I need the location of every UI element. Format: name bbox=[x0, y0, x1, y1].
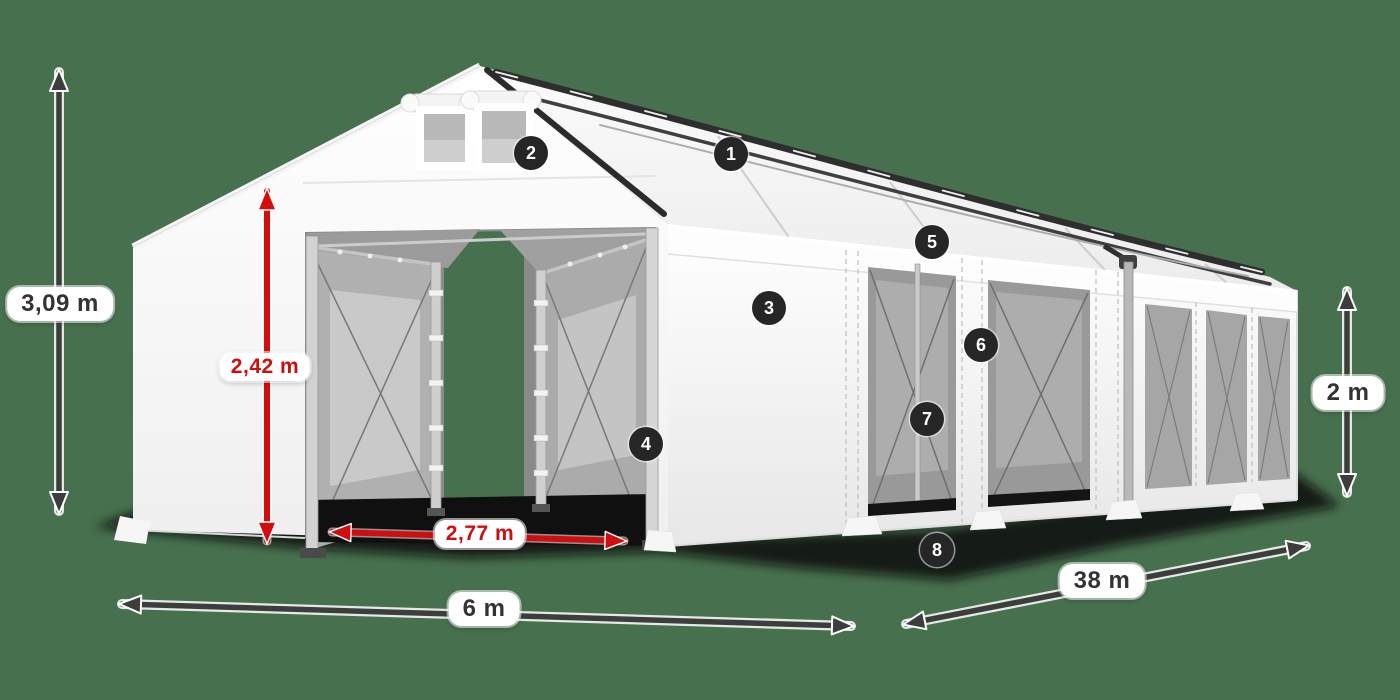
callout-badge-3: 3 bbox=[752, 291, 786, 325]
callout-badge-8: 8 bbox=[920, 533, 954, 567]
sidewall-opening-b bbox=[988, 280, 1090, 507]
dimension-label-total-height: 3,09 m bbox=[7, 287, 113, 321]
sidewall-window-3 bbox=[1258, 316, 1290, 481]
dimension-label-gable-width: 6 m bbox=[449, 592, 520, 626]
dimension-label-side-height: 2 m bbox=[1313, 376, 1384, 410]
dimension-label-length: 38 m bbox=[1060, 564, 1145, 598]
entrance-doorway bbox=[300, 227, 666, 558]
callout-badge-5: 5 bbox=[915, 225, 949, 259]
callout-badge-4: 4 bbox=[629, 427, 663, 461]
doorway-see-through bbox=[444, 231, 524, 506]
sidewall-window-1 bbox=[1145, 304, 1192, 489]
dimension-label-entrance-width: 2,77 m bbox=[435, 520, 525, 548]
callout-badge-1: 1 bbox=[714, 137, 748, 171]
callout-badge-2: 2 bbox=[514, 136, 548, 170]
callout-badge-6: 6 bbox=[964, 328, 998, 362]
callout-badge-7: 7 bbox=[910, 402, 944, 436]
tent-diagram-scene: 3,09 m 2,42 m 2,77 m 6 m 38 m 2 m 1 2 3 … bbox=[0, 0, 1400, 700]
sidewall-window-2 bbox=[1206, 310, 1247, 485]
sidewall-opening-a bbox=[868, 264, 956, 516]
tent-illustration bbox=[0, 0, 1400, 700]
dimension-label-entrance-height: 2,42 m bbox=[220, 353, 310, 381]
